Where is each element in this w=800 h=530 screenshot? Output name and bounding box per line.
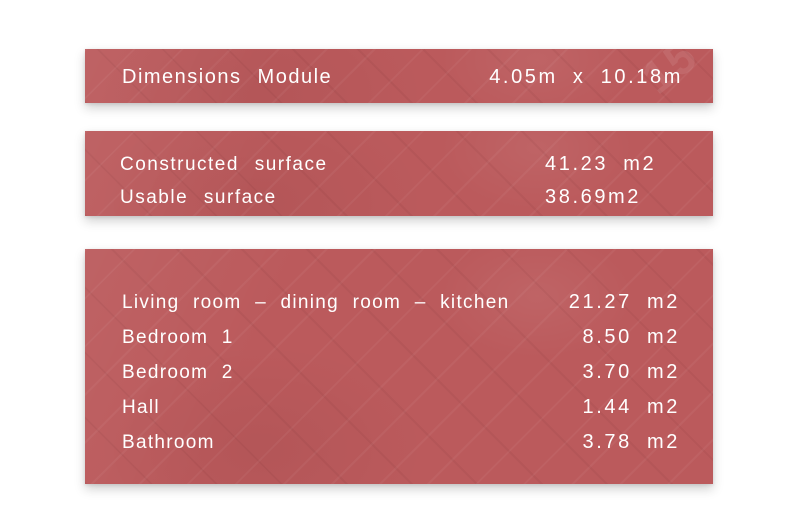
row-value: 3.78 m2 — [535, 425, 680, 460]
dimensions-module-title: Dimensions Module — [122, 66, 332, 89]
table-row-hall: Hall 1.44 m2 — [122, 390, 680, 425]
row-label: Bedroom 2 — [122, 355, 535, 390]
surfaces-panel: Constructed surface 41.23 m2 Usable surf… — [85, 131, 713, 216]
page: 15 Dimensions Module 4.05m x 10.18m Cons… — [0, 0, 800, 530]
row-value: 21.27 m2 — [535, 285, 680, 320]
row-label: Constructed surface — [120, 148, 545, 181]
dimensions-module-value: 4.05m x 10.18m — [489, 66, 683, 89]
rooms-panel: Living room – dining room – kitchen 21.2… — [85, 249, 713, 484]
row-label: Bathroom — [122, 425, 535, 460]
table-row-living-room: Living room – dining room – kitchen 21.2… — [122, 285, 680, 320]
table-row-bedroom-1: Bedroom 1 8.50 m2 — [122, 320, 680, 355]
row-value: 1.44 m2 — [535, 390, 680, 425]
row-value: 3.70 m2 — [535, 355, 680, 390]
row-value: 41.23 m2 — [545, 148, 680, 181]
table-row-constructed-surface: Constructed surface 41.23 m2 — [120, 148, 680, 181]
table-row-bedroom-2: Bedroom 2 3.70 m2 — [122, 355, 680, 390]
table-row-bathroom: Bathroom 3.78 m2 — [122, 425, 680, 460]
dimensions-module-panel: 15 Dimensions Module 4.05m x 10.18m — [85, 49, 713, 103]
row-value: 8.50 m2 — [535, 320, 680, 355]
row-label: Usable surface — [120, 181, 545, 214]
row-label: Hall — [122, 390, 535, 425]
row-value: 38.69m2 — [545, 181, 680, 214]
row-label: Bedroom 1 — [122, 320, 535, 355]
table-row-usable-surface: Usable surface 38.69m2 — [120, 181, 680, 214]
row-label: Living room – dining room – kitchen — [122, 285, 535, 320]
